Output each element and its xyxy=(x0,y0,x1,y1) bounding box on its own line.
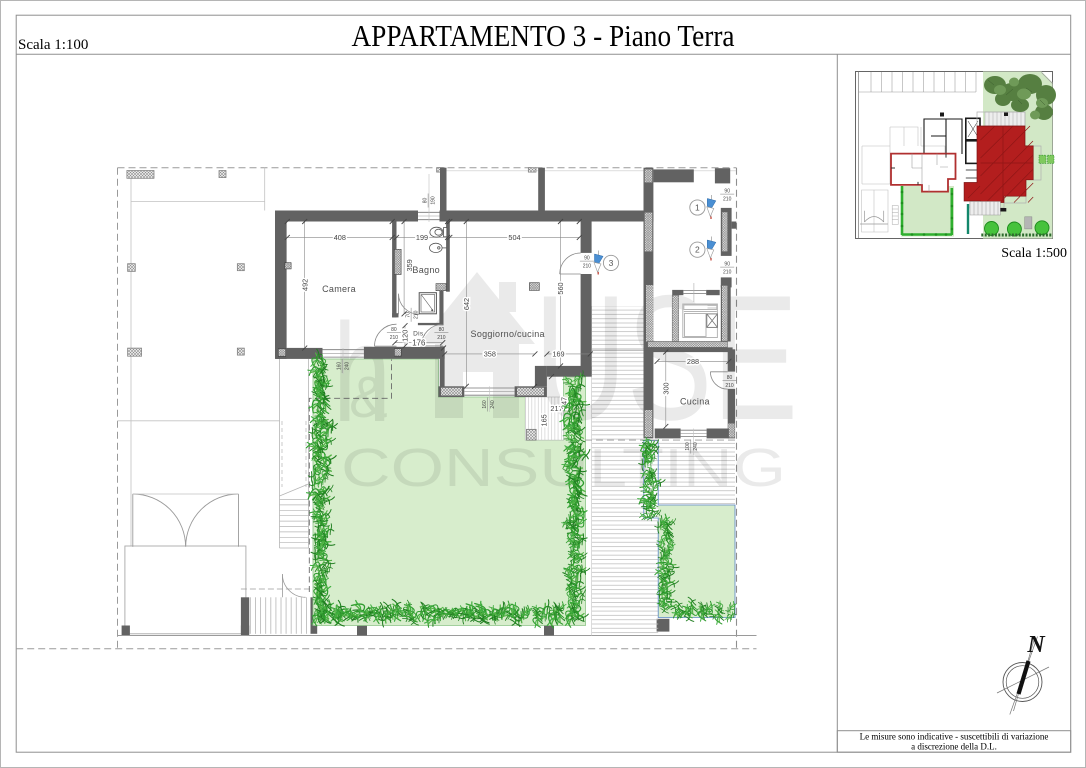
svg-text:165: 165 xyxy=(539,414,548,426)
svg-text:210: 210 xyxy=(725,383,734,389)
svg-text:190: 190 xyxy=(431,196,437,205)
svg-text:Camera: Camera xyxy=(322,284,356,294)
svg-text:160: 160 xyxy=(337,362,343,371)
svg-text:1: 1 xyxy=(695,202,700,212)
svg-text:90: 90 xyxy=(584,256,590,262)
svg-text:210: 210 xyxy=(414,310,420,319)
svg-text:240: 240 xyxy=(345,362,351,371)
svg-text:70: 70 xyxy=(406,312,412,318)
svg-text:240: 240 xyxy=(490,400,496,409)
svg-text:Cucina: Cucina xyxy=(680,397,710,407)
svg-text:492: 492 xyxy=(300,279,309,291)
svg-text:80: 80 xyxy=(391,327,397,333)
svg-text:560: 560 xyxy=(556,282,565,294)
svg-text:288: 288 xyxy=(687,357,699,366)
svg-text:358: 358 xyxy=(484,349,496,358)
svg-text:a discrezione della D.L.: a discrezione della D.L. xyxy=(911,742,997,752)
svg-text:300: 300 xyxy=(661,382,670,394)
svg-text:642: 642 xyxy=(462,298,471,310)
svg-text:240: 240 xyxy=(693,442,699,451)
svg-text:210: 210 xyxy=(723,197,732,203)
svg-text:Dis.: Dis. xyxy=(413,331,425,338)
svg-text:90: 90 xyxy=(724,189,730,195)
svg-text:Bagno: Bagno xyxy=(412,265,440,275)
svg-text:&: & xyxy=(349,365,388,430)
svg-text:120: 120 xyxy=(401,330,410,342)
svg-text:210: 210 xyxy=(390,335,399,341)
svg-text:100: 100 xyxy=(685,442,691,451)
svg-text:199: 199 xyxy=(416,233,428,242)
svg-text:210: 210 xyxy=(583,264,592,270)
svg-text:160: 160 xyxy=(482,400,488,409)
svg-text:504: 504 xyxy=(508,233,520,242)
svg-text:90: 90 xyxy=(724,262,730,268)
svg-text:2: 2 xyxy=(695,245,700,255)
svg-text:210: 210 xyxy=(437,335,446,341)
svg-text:Scala 1:500: Scala 1:500 xyxy=(1001,246,1067,261)
svg-text:3: 3 xyxy=(609,258,614,268)
svg-text:408: 408 xyxy=(334,233,346,242)
svg-text:80: 80 xyxy=(439,327,445,333)
svg-text:176: 176 xyxy=(412,338,425,347)
svg-text:Scala 1:100: Scala 1:100 xyxy=(18,37,88,53)
svg-text:N: N xyxy=(1026,632,1046,658)
svg-text:80: 80 xyxy=(727,375,733,381)
svg-text:Soggiorno/cucina: Soggiorno/cucina xyxy=(471,329,545,339)
svg-text:169: 169 xyxy=(552,349,564,358)
svg-text:210: 210 xyxy=(723,270,732,276)
svg-text:Le misure sono indicative - su: Le misure sono indicative - suscettibili… xyxy=(860,732,1049,742)
svg-text:APPARTAMENTO 3 - Piano Terra: APPARTAMENTO 3 - Piano Terra xyxy=(352,18,735,53)
svg-text:80: 80 xyxy=(423,198,429,204)
